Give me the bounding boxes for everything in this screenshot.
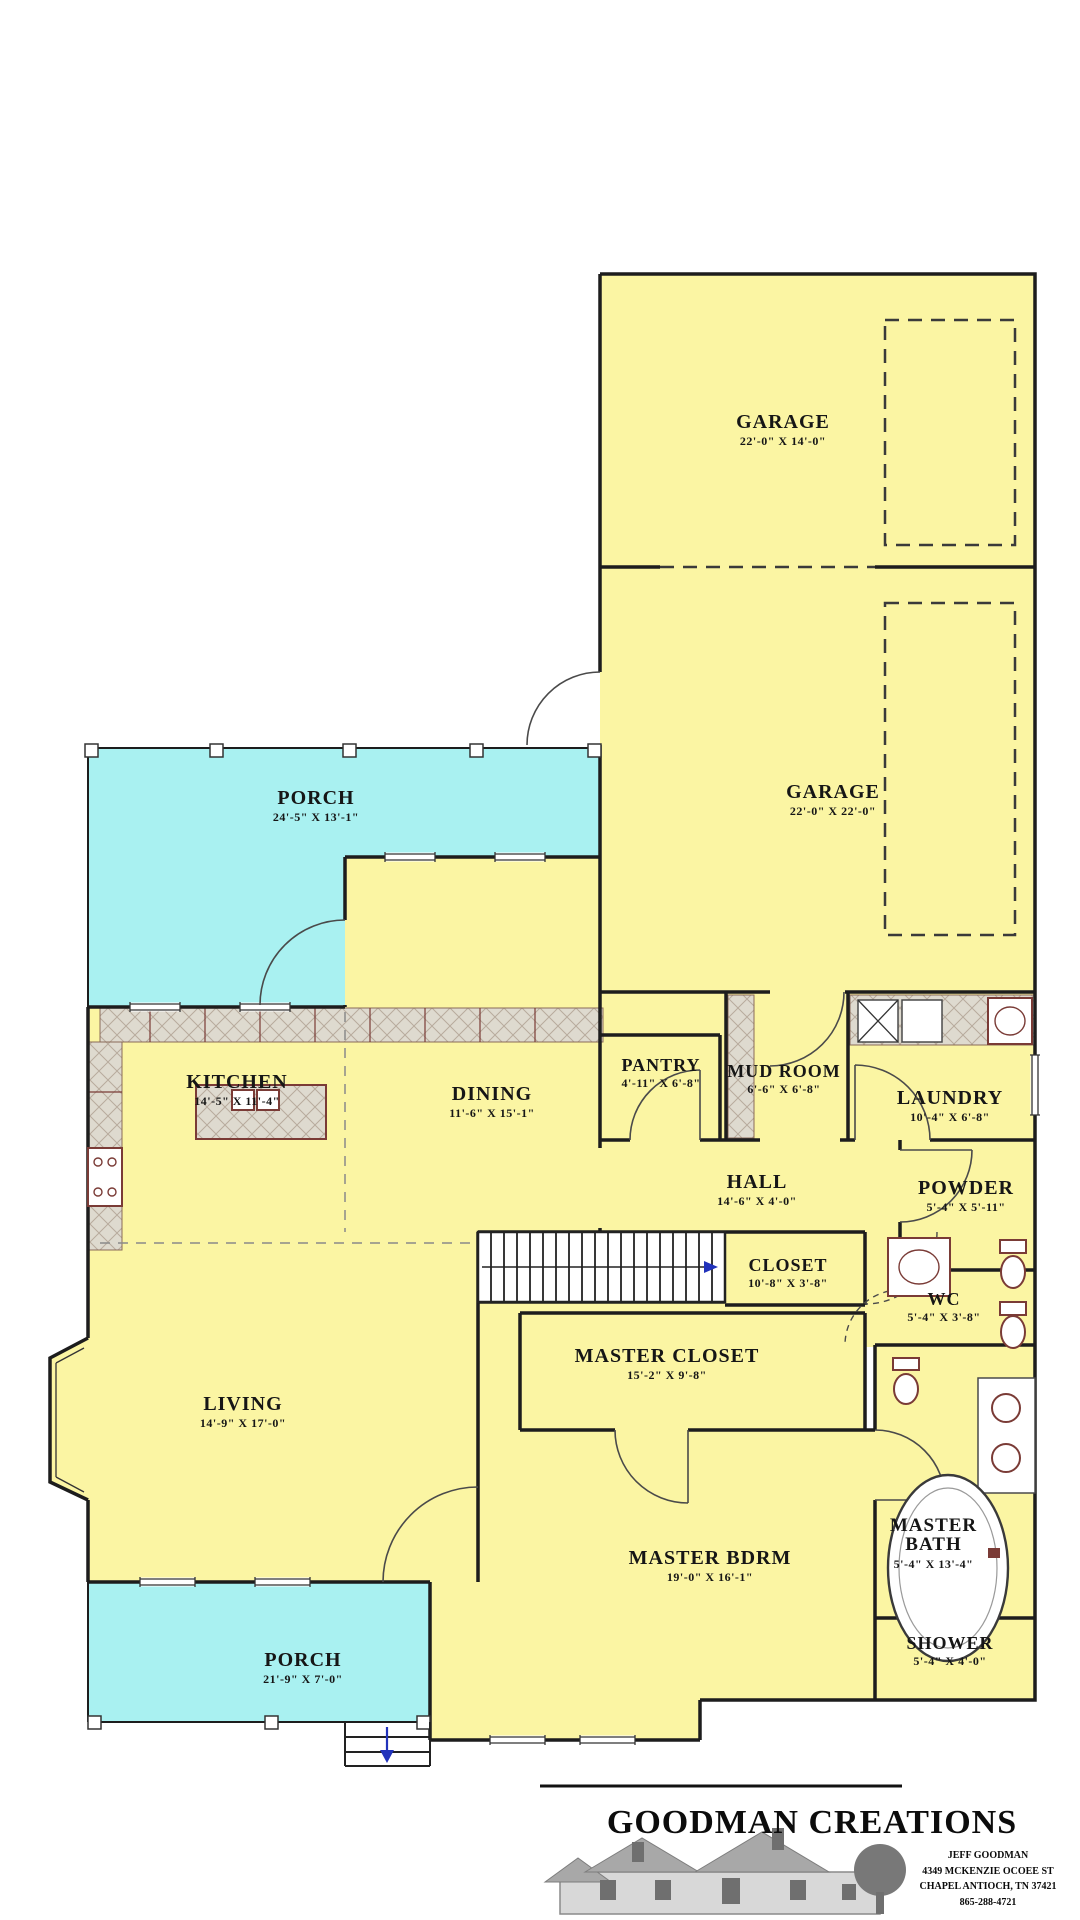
room-name: PORCH <box>263 1650 343 1671</box>
room-name: WC <box>907 1290 980 1309</box>
room-dims: 14'-5" X 11'-4" <box>186 1093 287 1110</box>
room-dims: 19'-0" X 16'-1" <box>629 1569 792 1586</box>
company-address: JEFF GOODMAN 4349 MCKENZIE OCOEE ST CHAP… <box>893 1848 1080 1910</box>
floor-plan-page: GARAGE 22'-0" X 14'-0" GARAGE 22'-0" X 2… <box>0 0 1080 1920</box>
powder-sink <box>888 1238 950 1296</box>
room-dims: 11'-6" X 15'-1" <box>449 1105 535 1122</box>
room-label-porch-upper: PORCH 24'-5" X 13'-1" <box>273 788 359 826</box>
room-label-garage-2: GARAGE 22'-0" X 22'-0" <box>786 782 880 820</box>
room-dims: 24'-5" X 13'-1" <box>273 809 359 826</box>
stairs <box>478 1232 725 1302</box>
room-name: HALL <box>717 1172 797 1193</box>
room-label-hall: HALL 14'-6" X 4'-0" <box>717 1172 797 1210</box>
room-name: KITCHEN <box>186 1072 287 1093</box>
room-name: LIVING <box>200 1394 286 1415</box>
room-name: GARAGE <box>786 782 880 803</box>
range <box>88 1148 122 1206</box>
wc-toilet <box>1000 1302 1026 1348</box>
room-name: SHOWER <box>906 1634 993 1653</box>
room-dims: 21'-9" X 7'-0" <box>263 1671 343 1688</box>
room-dims: 22'-0" X 22'-0" <box>786 803 880 820</box>
room-name: DINING <box>449 1084 535 1105</box>
room-label-garage-1: GARAGE 22'-0" X 14'-0" <box>736 412 830 450</box>
room-label-kitchen: KITCHEN 14'-5" X 11'-4" <box>186 1072 287 1110</box>
address-line: CHAPEL ANTIOCH, TN 37421 <box>893 1879 1080 1895</box>
room-label-mud-room: MUD ROOM 6'-6" X 6'-8" <box>727 1062 840 1098</box>
company-name: GOODMAN CREATIONS <box>607 1804 1017 1842</box>
room-label-laundry: LAUNDRY 10'-4" X 6'-8" <box>897 1088 1003 1126</box>
tub-faucet <box>988 1548 1000 1558</box>
room-name: MASTER BATH <box>886 1516 981 1554</box>
room-name: CLOSET <box>748 1256 828 1275</box>
room-label-master-bath: MASTER BATH 5'-4" X 13'-4" <box>886 1516 981 1573</box>
room-label-porch-lower: PORCH 21'-9" X 7'-0" <box>263 1650 343 1688</box>
room-label-dining: DINING 11'-6" X 15'-1" <box>449 1084 535 1122</box>
address-line: JEFF GOODMAN <box>893 1848 1080 1864</box>
bath-toilet <box>893 1358 919 1404</box>
room-label-powder: POWDER 5'-4" X 5'-11" <box>918 1178 1014 1216</box>
room-label-shower: SHOWER 5'-4" X 4'-0" <box>906 1634 993 1670</box>
address-line: 4349 MCKENZIE OCOEE ST <box>893 1864 1080 1880</box>
room-dims: 22'-0" X 14'-0" <box>736 433 830 450</box>
room-dims: 5'-4" X 4'-0" <box>906 1653 993 1670</box>
room-dims: 5'-4" X 13'-4" <box>886 1557 981 1573</box>
address-line: 865-288-4721 <box>893 1895 1080 1911</box>
room-dims: 10'-4" X 6'-8" <box>897 1109 1003 1126</box>
room-label-living: LIVING 14'-9" X 17'-0" <box>200 1394 286 1432</box>
room-dims: 14'-6" X 4'-0" <box>717 1193 797 1210</box>
room-name: LAUNDRY <box>897 1088 1003 1109</box>
laundry-sink <box>988 998 1032 1044</box>
room-label-wc: WC 5'-4" X 3'-8" <box>907 1290 980 1326</box>
room-dims: 10'-8" X 3'-8" <box>748 1275 828 1292</box>
room-label-closet: CLOSET 10'-8" X 3'-8" <box>748 1256 828 1292</box>
room-name: MUD ROOM <box>727 1062 840 1081</box>
room-dims: 5'-4" X 3'-8" <box>907 1309 980 1326</box>
room-dims: 6'-6" X 6'-8" <box>727 1081 840 1098</box>
room-dims: 4'-11" X 6'-8" <box>621 1075 700 1092</box>
floor-plan-svg <box>0 0 1080 1920</box>
room-name: MASTER BDRM <box>629 1548 792 1569</box>
room-name: MASTER CLOSET <box>575 1346 760 1367</box>
room-dims: 5'-4" X 5'-11" <box>918 1199 1014 1216</box>
room-label-master-closet: MASTER CLOSET 15'-2" X 9'-8" <box>575 1346 760 1384</box>
room-label-master-bdrm: MASTER BDRM 19'-0" X 16'-1" <box>629 1548 792 1586</box>
steps-direction-arrow <box>380 1750 394 1763</box>
room-dims: 14'-9" X 17'-0" <box>200 1415 286 1432</box>
room-name: PORCH <box>273 788 359 809</box>
room-dims: 15'-2" X 9'-8" <box>575 1367 760 1384</box>
room-name: PANTRY <box>621 1056 700 1075</box>
room-name: POWDER <box>918 1178 1014 1199</box>
room-label-pantry: PANTRY 4'-11" X 6'-8" <box>621 1056 700 1092</box>
powder-toilet <box>1000 1240 1026 1288</box>
bath-vanity <box>978 1378 1035 1493</box>
room-name: GARAGE <box>736 412 830 433</box>
